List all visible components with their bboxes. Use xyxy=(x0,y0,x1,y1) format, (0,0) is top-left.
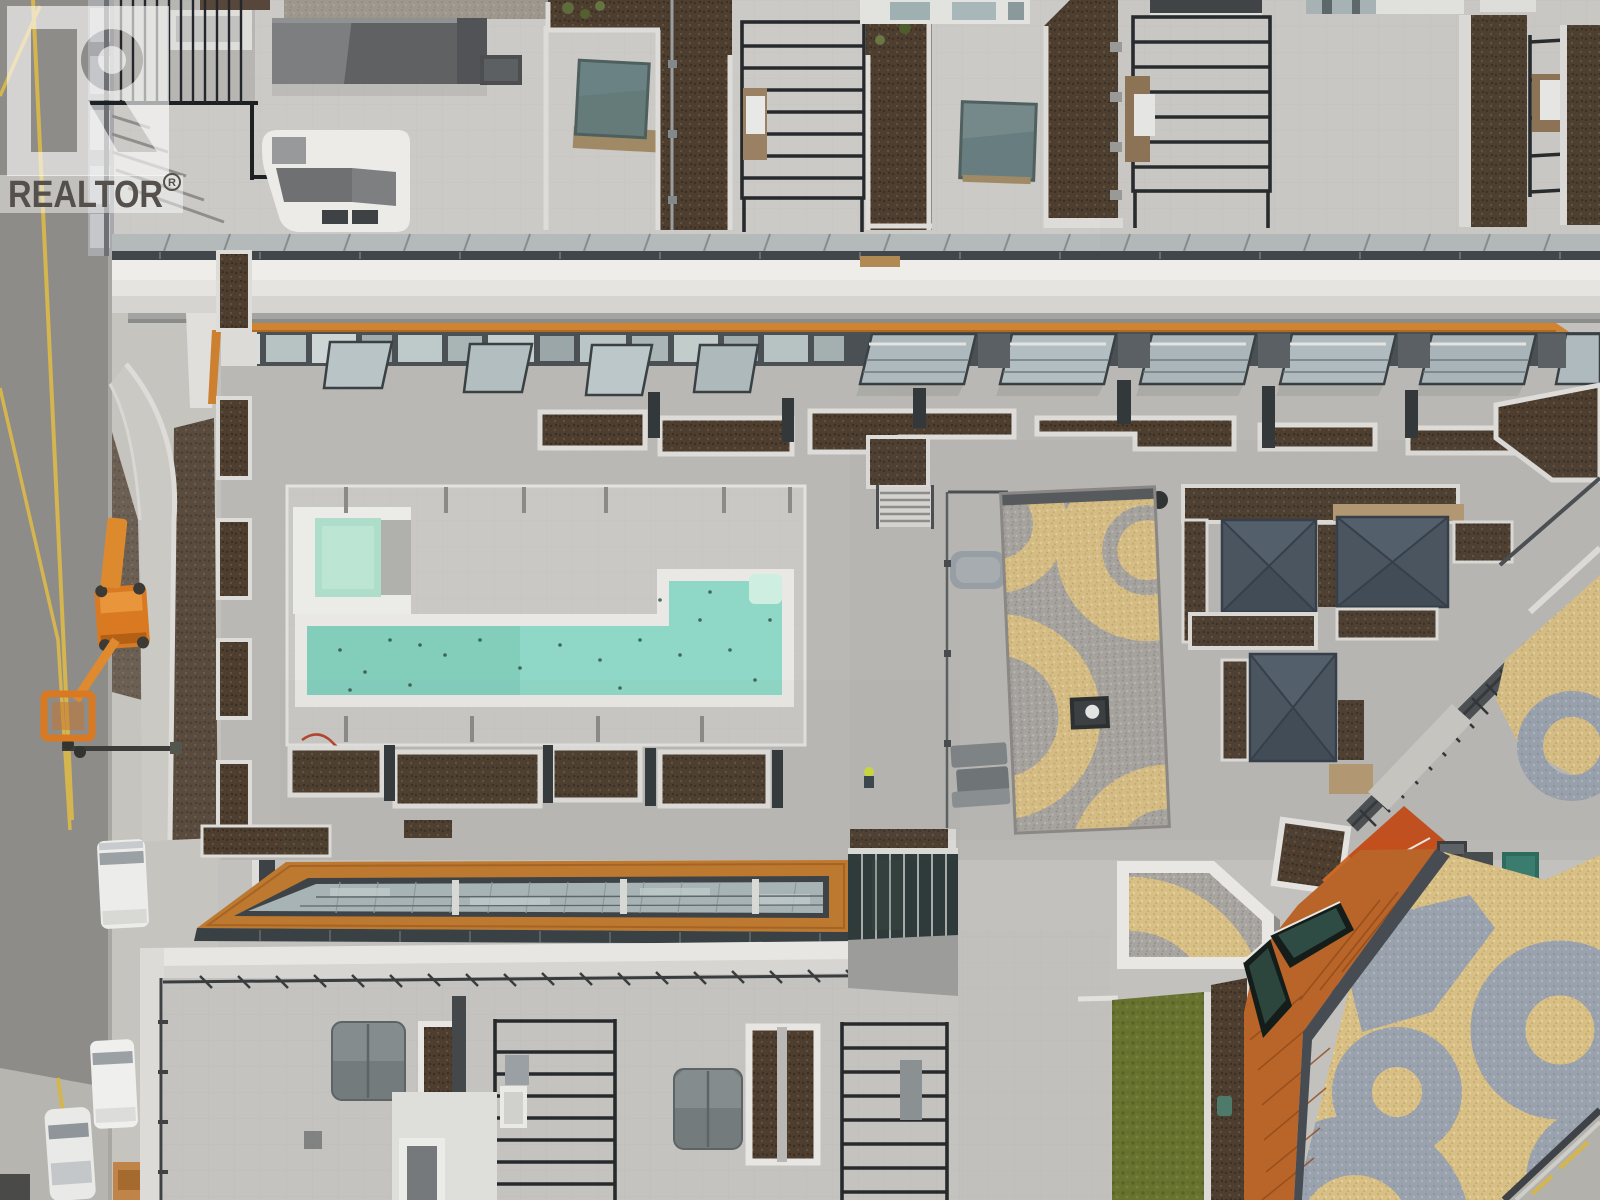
svg-text:REALTOR: REALTOR xyxy=(8,174,163,216)
svg-text:R: R xyxy=(168,177,176,189)
